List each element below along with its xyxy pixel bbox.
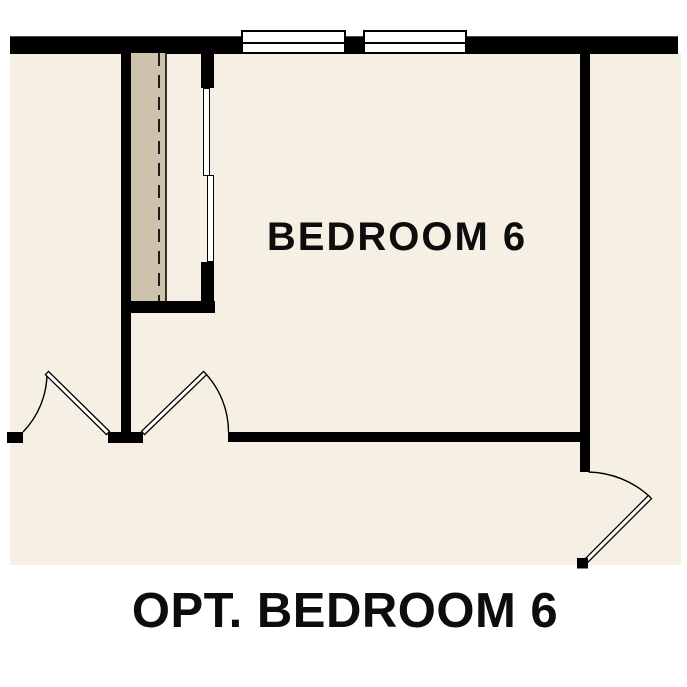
bypass-door-panel-inner bbox=[207, 175, 214, 262]
closet-wall-left bbox=[121, 53, 131, 443]
closet-shelf-area bbox=[131, 53, 167, 301]
bypass-door-panel-outer bbox=[203, 88, 210, 176]
wall-bottom bbox=[228, 432, 580, 442]
closet-rod-dashed-line bbox=[158, 53, 160, 301]
wall-stub-left bbox=[7, 432, 23, 443]
closet-jamb-bottom bbox=[201, 262, 214, 313]
window-pane-line bbox=[365, 42, 465, 44]
window-icon bbox=[241, 30, 346, 54]
floor-plan: BEDROOM 6 OPT. BEDROOM 6 bbox=[0, 0, 687, 687]
window-pane-line bbox=[243, 42, 344, 44]
wall-right bbox=[580, 53, 590, 472]
plan-caption: OPT. BEDROOM 6 bbox=[132, 587, 558, 636]
room-label: BEDROOM 6 bbox=[267, 217, 527, 257]
window-icon bbox=[363, 30, 467, 54]
closet-jamb-top bbox=[201, 53, 214, 88]
